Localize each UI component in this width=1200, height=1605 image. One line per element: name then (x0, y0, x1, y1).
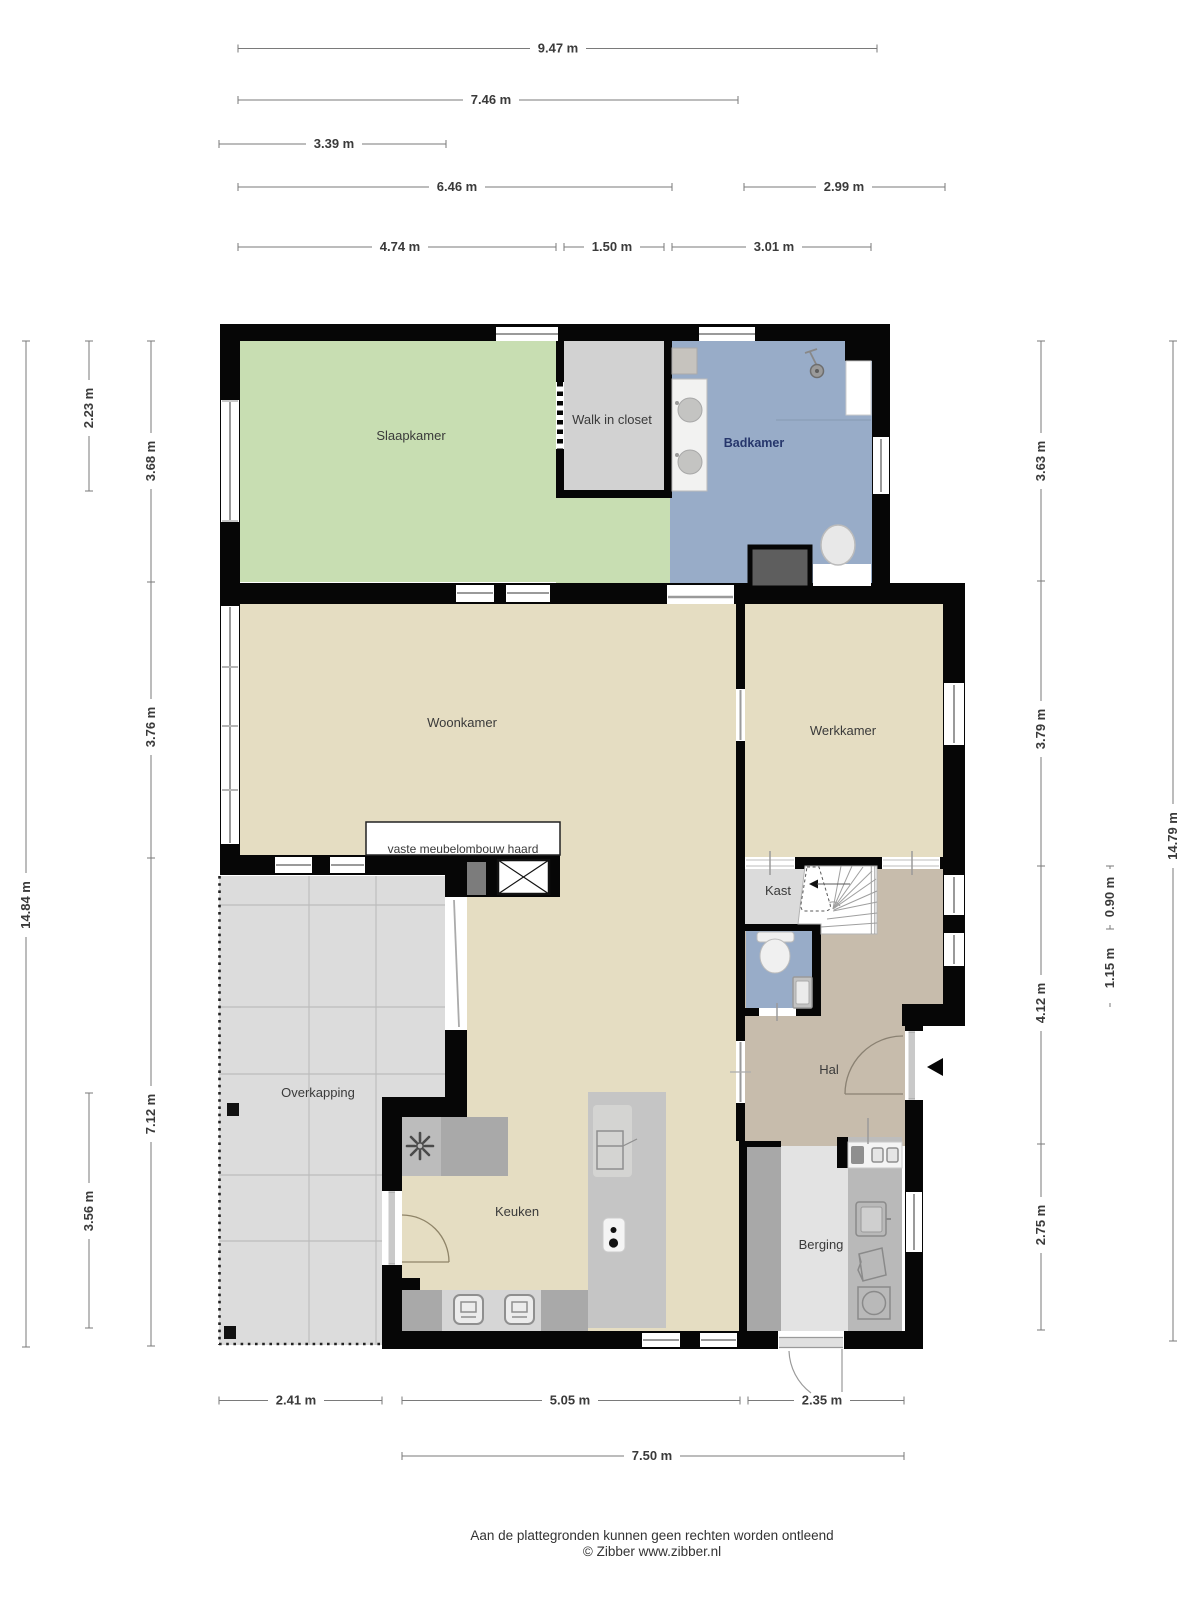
svg-text:14.79 m: 14.79 m (1165, 812, 1180, 860)
svg-text:3.56 m: 3.56 m (81, 1191, 96, 1231)
svg-text:1.15 m: 1.15 m (1102, 948, 1117, 988)
svg-text:4.74 m: 4.74 m (380, 239, 420, 254)
svg-text:1.50 m: 1.50 m (592, 239, 632, 254)
svg-text:Berging: Berging (799, 1237, 844, 1252)
svg-text:vaste meubelombouw haard: vaste meubelombouw haard (388, 842, 539, 856)
svg-text:9.47 m: 9.47 m (538, 41, 578, 56)
svg-text:Hal: Hal (819, 1062, 839, 1077)
svg-text:7.50 m: 7.50 m (632, 1448, 672, 1463)
svg-text:4.12 m: 4.12 m (1033, 983, 1048, 1023)
svg-text:Werkkamer: Werkkamer (810, 723, 877, 738)
svg-text:Slaapkamer: Slaapkamer (376, 428, 446, 443)
svg-text:6.46 m: 6.46 m (437, 179, 477, 194)
svg-text:7.12 m: 7.12 m (143, 1094, 158, 1134)
svg-text:Woonkamer: Woonkamer (427, 715, 498, 730)
svg-text:3.68 m: 3.68 m (143, 441, 158, 481)
svg-text:Kast: Kast (765, 883, 791, 898)
svg-text:2.41 m: 2.41 m (276, 1393, 316, 1408)
svg-text:3.39 m: 3.39 m (314, 136, 354, 151)
svg-text:Keuken: Keuken (495, 1204, 539, 1219)
svg-text:0.90 m: 0.90 m (1102, 877, 1117, 917)
svg-text:Walk in closet: Walk in closet (572, 412, 652, 427)
svg-text:3.76 m: 3.76 m (143, 707, 158, 747)
svg-text:14.84 m: 14.84 m (18, 881, 33, 929)
svg-text:3.63 m: 3.63 m (1033, 441, 1048, 481)
svg-text:Overkapping: Overkapping (281, 1085, 355, 1100)
svg-text:2.75 m: 2.75 m (1033, 1205, 1048, 1245)
svg-text:2.99 m: 2.99 m (824, 179, 864, 194)
svg-text:7.46 m: 7.46 m (471, 92, 511, 107)
svg-text:© Zibber www.zibber.nl: © Zibber www.zibber.nl (583, 1544, 721, 1559)
svg-text:3.01 m: 3.01 m (754, 239, 794, 254)
svg-text:3.79 m: 3.79 m (1033, 709, 1048, 749)
svg-text:Badkamer: Badkamer (724, 436, 785, 450)
svg-text:2.35 m: 2.35 m (802, 1393, 842, 1408)
svg-text:5.05 m: 5.05 m (550, 1393, 590, 1408)
svg-text:2.23 m: 2.23 m (81, 388, 96, 428)
svg-text:Aan de plattegronden kunnen ge: Aan de plattegronden kunnen geen rechten… (470, 1528, 833, 1543)
